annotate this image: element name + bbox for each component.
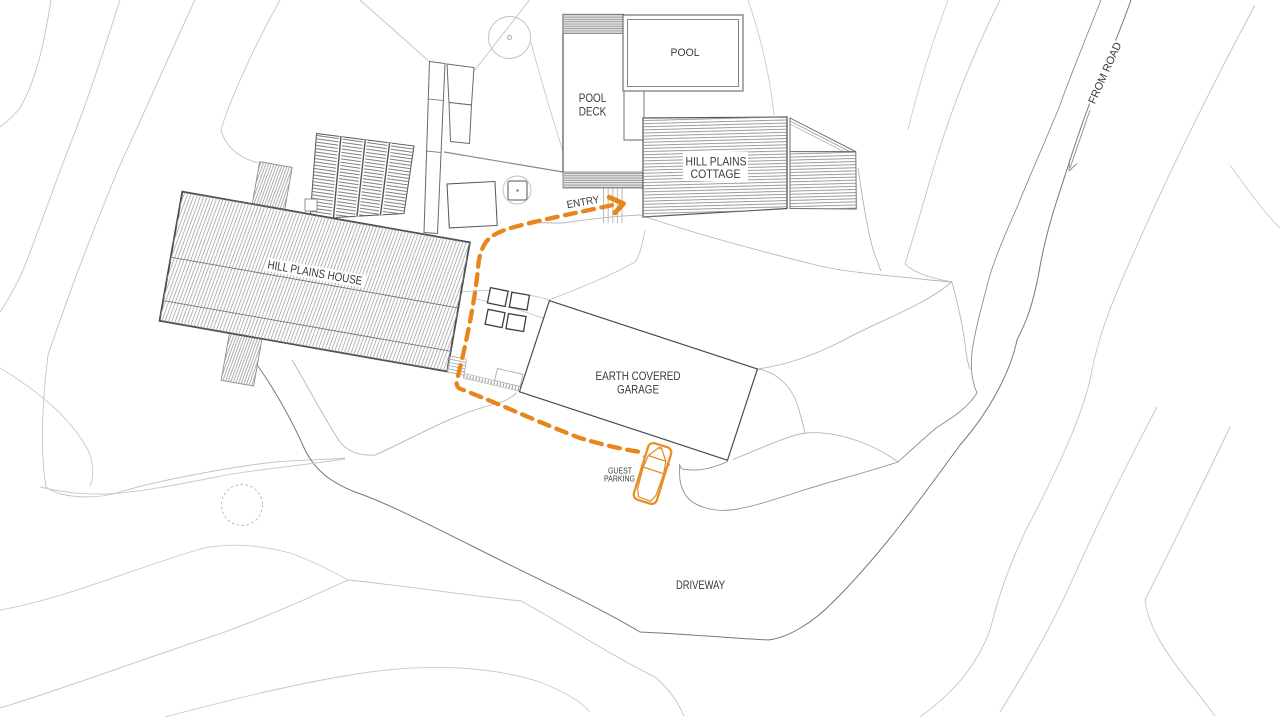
svg-text:POOL: POOL [579,93,607,105]
svg-text:DRIVEWAY: DRIVEWAY [676,578,725,592]
svg-text:PARKING: PARKING [604,475,635,484]
svg-text:COTTAGE: COTTAGE [691,167,741,181]
svg-text:POOL: POOL [671,47,700,59]
svg-text:EARTH COVERED: EARTH COVERED [596,369,681,383]
svg-text:GARAGE: GARAGE [617,383,659,397]
svg-text:DECK: DECK [579,107,607,119]
